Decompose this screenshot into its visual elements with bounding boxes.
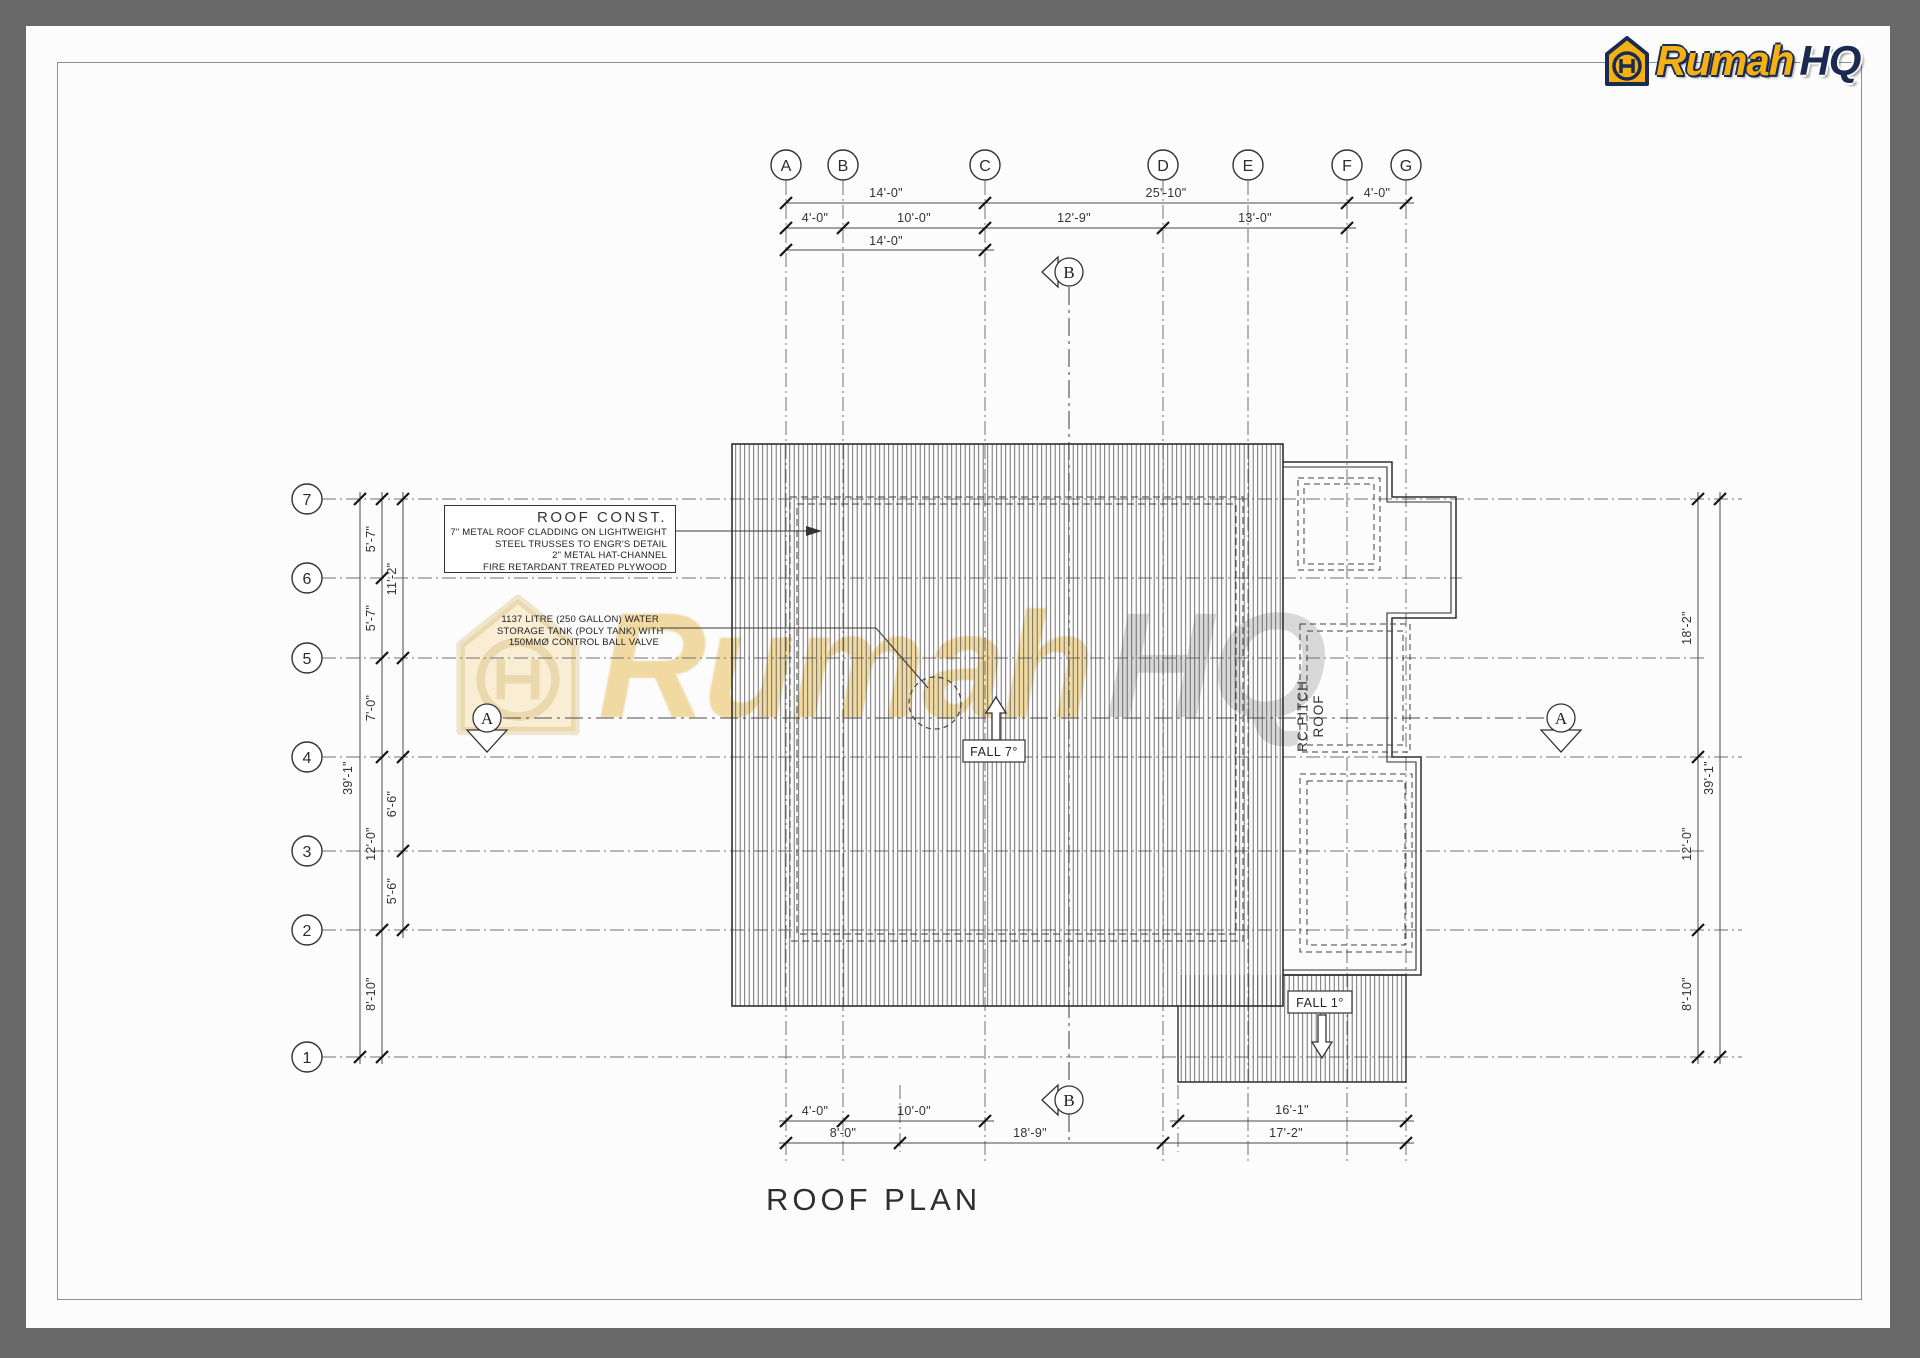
dim-left-overall: 39'-1" — [341, 761, 355, 795]
water-tank-note: 1137 LITRE (250 GALLON) WATER STORAGE TA… — [497, 614, 659, 649]
roof-const-line: 2" METAL HAT-CHANNEL — [449, 550, 667, 562]
section-marker-b-top: B — [1042, 257, 1083, 287]
section-a-left-label: A — [481, 709, 494, 728]
roof-const-line: FIRE RETARDANT TREATED PLYWOOD — [449, 562, 667, 574]
water-tank-line: STORAGE TANK (POLY TANK) WITH — [497, 626, 659, 638]
dim-top-d-f: 13'-0" — [1238, 211, 1272, 225]
dim-bottom-8ft: 8'-0" — [830, 1126, 856, 1140]
dim-left-2-1: 8'-10" — [364, 977, 378, 1011]
dim-top-c-f: 25'-10" — [1146, 186, 1187, 200]
fall-main-label: FALL 7° — [970, 745, 1018, 759]
logo-rumah: Rumah — [1656, 40, 1793, 82]
fall-secondary-label: FALL 1° — [1296, 996, 1344, 1010]
drawing-canvas: Rumah HQ Rumah HQ — [0, 0, 1920, 1358]
section-marker-a-right: A — [1541, 704, 1581, 752]
water-tank-line: 1137 LITRE (250 GALLON) WATER — [497, 614, 659, 626]
drawing-title: ROOF PLAN — [766, 1182, 981, 1218]
grid-row-2: 2 — [303, 923, 312, 940]
section-b-top-label: B — [1063, 263, 1074, 282]
roof-const-line: 7" METAL ROOF CLADDING ON LIGHTWEIGHT — [449, 527, 667, 539]
dim-top-overall-a-c: 14'-0" — [869, 234, 903, 248]
grid-column-f: F — [1342, 158, 1352, 175]
dim-left-outer-7-5: 11'-2" — [385, 563, 399, 596]
brand-logo: Rumah HQ — [1604, 36, 1860, 86]
dim-left-7-6: 5'-7" — [364, 526, 378, 552]
roof-const-heading: ROOF CONST. — [449, 509, 667, 526]
section-marker-b-bottom: B — [1042, 1085, 1083, 1115]
grid-row-4: 4 — [303, 750, 312, 767]
dim-top-a-b: 4'-0" — [802, 211, 828, 225]
dim-bottom-right-17ft2: 17'-2" — [1269, 1126, 1303, 1140]
water-tank-line: 150MMØ CONTROL BALL VALVE — [497, 637, 659, 649]
dim-bottom-a-b: 4'-0" — [802, 1104, 828, 1118]
section-b-bottom-label: B — [1063, 1091, 1074, 1110]
dim-top-c-d: 12'-9" — [1057, 211, 1091, 225]
rc-pitch-roof-label-line2: ROOF — [1311, 695, 1326, 738]
dim-right-7-4: 18'-2" — [1680, 611, 1694, 645]
dim-right-2-1: 8'-10" — [1680, 977, 1694, 1011]
grid-column-d: D — [1157, 158, 1169, 175]
grid-row-1: 1 — [303, 1050, 312, 1067]
dim-left-outer-3-2: 5'-6" — [385, 878, 399, 904]
dim-bottom-right-16ft1: 16'-1" — [1275, 1103, 1309, 1117]
dim-left-outer-4-3: 6'-6" — [385, 791, 399, 817]
dim-top-f-g: 4'-0" — [1364, 186, 1390, 200]
dim-bottom-18ft9: 18'-9" — [1013, 1126, 1047, 1140]
dim-top-b-c: 10'-0" — [897, 211, 931, 225]
grid-column-g: G — [1400, 158, 1412, 175]
dim-left-6-5: 5'-7" — [364, 605, 378, 631]
grid-row-7: 7 — [303, 492, 312, 509]
dim-left-4-2: 12'-0" — [364, 827, 378, 861]
section-marker-a-left: A — [467, 704, 507, 752]
grid-row-5: 5 — [303, 651, 312, 668]
dim-left-5-4: 7'-0" — [364, 695, 378, 721]
house-logo-icon — [1604, 36, 1650, 86]
main-roof — [732, 444, 1283, 1006]
roof-construction-note: ROOF CONST. 7" METAL ROOF CLADDING ON LI… — [444, 505, 676, 573]
grid-column-b: B — [838, 158, 849, 175]
grid-column-e: E — [1243, 158, 1254, 175]
column-bubbles — [771, 150, 1421, 180]
dim-right-overall: 39'-1" — [1702, 761, 1716, 795]
logo-hq: HQ — [1799, 40, 1860, 82]
rc-pitch-roof: RC PITCH ROOF — [1283, 462, 1456, 975]
grid-row-6: 6 — [303, 571, 312, 588]
roof-const-line: STEEL TRUSSES TO ENGR'S DETAIL — [449, 539, 667, 551]
dim-right-4-2: 12'-0" — [1680, 827, 1694, 861]
rc-pitch-roof-label-line1: RC PITCH — [1295, 680, 1310, 752]
grid-column-a: A — [781, 158, 792, 175]
dim-bottom-b-c: 10'-0" — [897, 1104, 931, 1118]
dim-top-a-c: 14'-0" — [869, 186, 903, 200]
grid-column-c: C — [979, 158, 991, 175]
grid-row-3: 3 — [303, 844, 312, 861]
roof-plan-drawing: RC PITCH ROOF FALL 7° FALL 1° — [0, 0, 1920, 1358]
section-a-right-label: A — [1555, 709, 1568, 728]
